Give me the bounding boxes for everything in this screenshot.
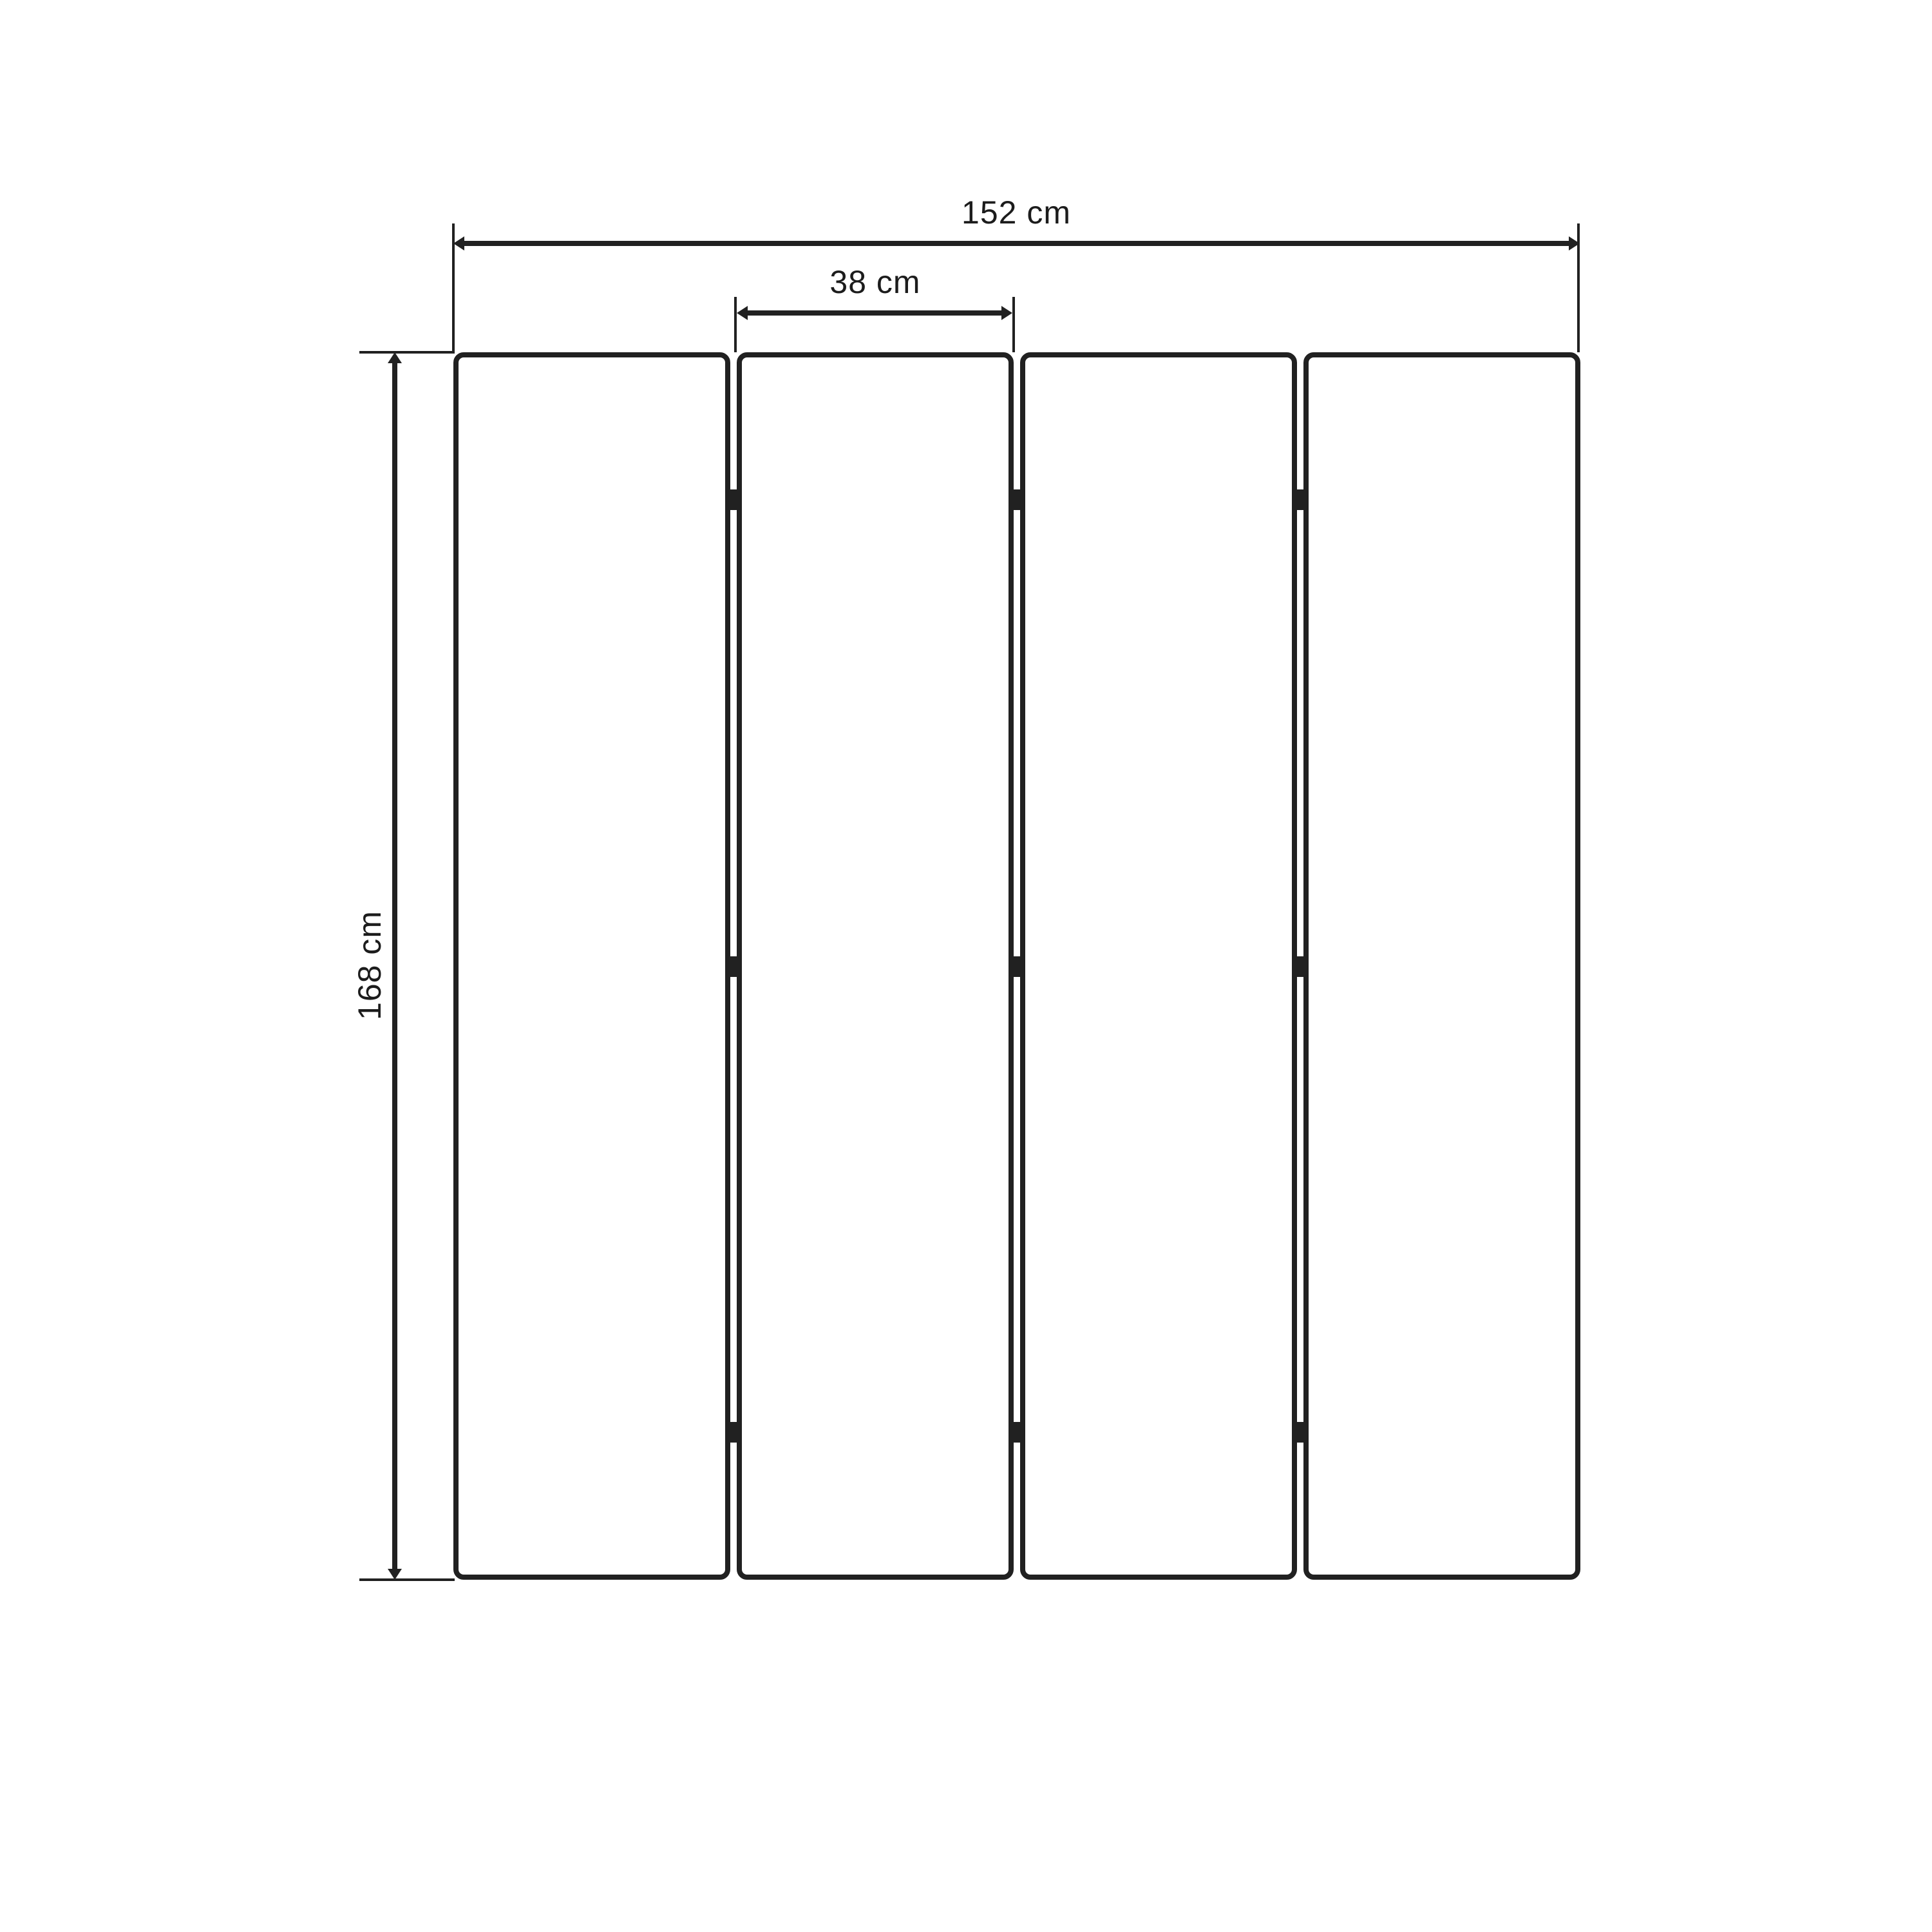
- hinge-icon: [1292, 956, 1309, 977]
- screen-panel-1: [453, 352, 730, 1580]
- arrow-left-icon: [737, 306, 748, 320]
- extension-line-height-top: [359, 351, 455, 354]
- panel-width-dimension-line: [742, 310, 1007, 316]
- arrow-right-icon: [1569, 236, 1580, 251]
- height-dimension-line: [392, 357, 397, 1575]
- hinge-icon: [1009, 1422, 1025, 1443]
- screen-panel-2: [737, 352, 1014, 1580]
- panel-width-label: 38 cm: [746, 264, 1004, 300]
- extension-line-height-bottom: [359, 1578, 455, 1581]
- hinge-icon: [1292, 1422, 1309, 1443]
- height-label: 168 cm: [352, 837, 388, 1094]
- total-width-dimension-line: [459, 241, 1575, 246]
- hinge-icon: [725, 956, 742, 977]
- dimension-diagram: 152 cm 38 cm 168 cm: [0, 0, 1932, 1932]
- extension-line-panel-right: [1012, 297, 1015, 352]
- arrow-up-icon: [388, 352, 402, 363]
- hinge-icon: [1009, 489, 1025, 510]
- arrow-left-icon: [453, 236, 464, 251]
- arrow-right-icon: [1001, 306, 1012, 320]
- extension-line-panel-left: [734, 297, 737, 352]
- arrow-down-icon: [388, 1569, 402, 1580]
- total-width-label: 152 cm: [887, 194, 1145, 231]
- screen-panel-3: [1020, 352, 1297, 1580]
- hinge-icon: [1009, 956, 1025, 977]
- hinge-icon: [725, 489, 742, 510]
- hinge-icon: [725, 1422, 742, 1443]
- screen-panel-4: [1303, 352, 1580, 1580]
- hinge-icon: [1292, 489, 1309, 510]
